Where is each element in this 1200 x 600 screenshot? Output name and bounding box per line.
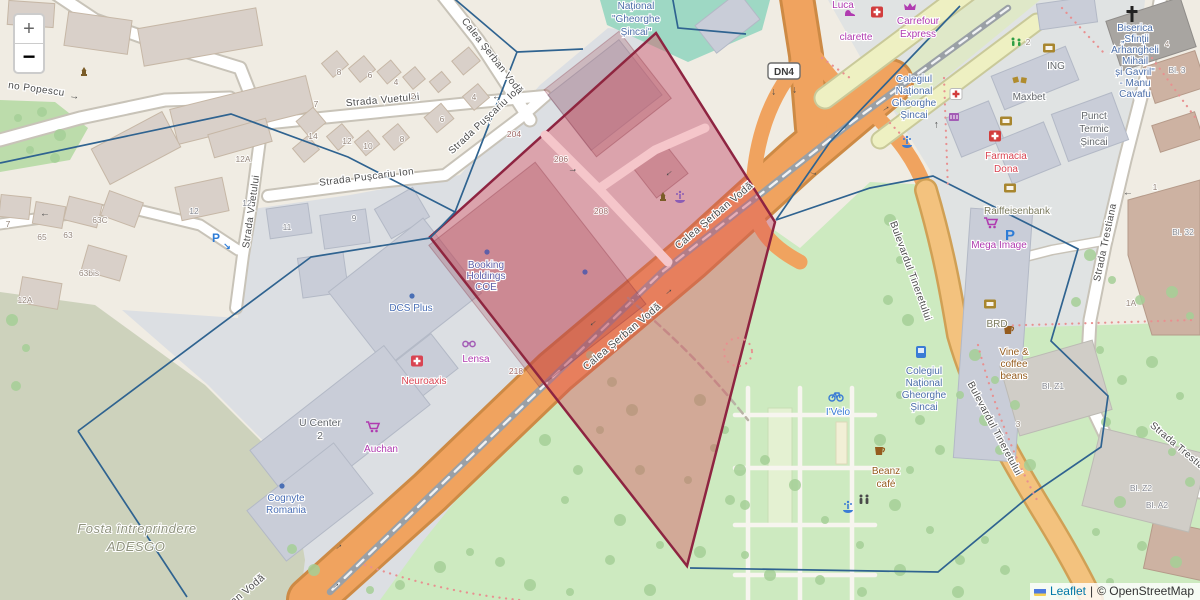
poi-ucenter: U Center — [299, 417, 342, 429]
tree-icon — [395, 580, 405, 590]
tree-icon — [1114, 496, 1126, 508]
zoom-in-button[interactable]: + — [15, 15, 43, 44]
house-number: 6 — [440, 114, 445, 124]
svg-text:Gheorghe: Gheorghe — [892, 98, 937, 109]
tree-icon — [50, 153, 60, 163]
tree-icon — [1185, 477, 1195, 487]
tree-icon — [37, 107, 47, 117]
oneway-arrow-icon: → — [567, 163, 578, 175]
poi-cognyte: Cognyte — [267, 493, 305, 504]
tree-icon — [539, 434, 551, 446]
clinic-icon — [411, 356, 423, 367]
tree-icon — [1146, 356, 1158, 368]
svg-text:și Gavril": și Gavril" — [1115, 67, 1155, 78]
tree-icon — [308, 564, 320, 576]
tree-icon — [734, 464, 746, 476]
pharmacy-icon — [989, 131, 1001, 142]
tree-icon — [466, 548, 474, 556]
house-number: 12A — [17, 295, 32, 305]
house-number: 65 — [37, 232, 47, 242]
tree-icon — [889, 499, 901, 511]
tree-icon — [287, 544, 297, 554]
svg-text:COE: COE — [475, 282, 497, 293]
oneway-arrow-icon: → — [790, 85, 801, 95]
poi-neuroaxis: Neuroaxis — [401, 376, 446, 387]
tree-icon — [11, 381, 21, 391]
zoom-control: + − — [13, 13, 45, 74]
oneway-arrow-icon: → — [930, 120, 941, 130]
dn4-label: DN4 — [774, 67, 794, 78]
oneway-arrow-icon: → — [492, 93, 502, 104]
house-number: Bl. Z2 — [1130, 483, 1152, 493]
house-number: 4 — [1165, 39, 1170, 49]
tree-icon — [1024, 459, 1036, 471]
house-number: 1 — [1153, 182, 1158, 192]
tree-icon — [434, 561, 446, 573]
tree-icon — [981, 536, 989, 544]
house-number: 9 — [352, 213, 357, 223]
tree-icon — [1071, 297, 1081, 307]
svg-text:beans: beans — [1000, 371, 1027, 382]
poi-school-top: Național — [618, 1, 655, 12]
house-number: 6 — [368, 70, 373, 80]
house-number: 63 — [63, 230, 73, 240]
tree-icon — [1092, 528, 1100, 536]
poi-lensa: Lensa — [462, 354, 490, 365]
svg-text:„Sfinții: „Sfinții — [1121, 34, 1149, 45]
house-number: 7 — [314, 99, 319, 109]
svg-text:Șincai: Șincai — [910, 402, 937, 413]
svg-text:Arhangheli: Arhangheli — [1111, 45, 1159, 56]
map-canvas[interactable]: DN4 Strada Vuetului Strada Vuetului Stra… — [0, 0, 1200, 600]
poi-school-park: Colegiul — [906, 366, 942, 377]
atm-icon — [1043, 44, 1055, 53]
oneway-arrow-icon: → — [769, 87, 780, 97]
osm-copyright[interactable]: © OpenStreetMap — [1097, 584, 1194, 598]
atm-icon — [1000, 117, 1012, 126]
poi-brd: BRD — [986, 319, 1007, 330]
tree-icon — [566, 588, 574, 596]
zoom-out-button[interactable]: − — [15, 44, 43, 72]
house-number: 12 — [189, 206, 199, 216]
svg-text:Mihail: Mihail — [1122, 56, 1148, 67]
tree-icon — [644, 584, 656, 596]
tree-icon — [614, 514, 626, 526]
house-number: 63C — [92, 215, 108, 225]
svg-text:Cavafu: Cavafu — [1119, 89, 1151, 100]
tree-icon — [883, 295, 893, 305]
house-number: 2 — [1026, 37, 1031, 47]
tree-icon — [14, 114, 22, 122]
leaflet-link[interactable]: Leaflet — [1050, 584, 1086, 598]
poi-auchan: Auchan — [364, 444, 398, 455]
poi-punct-termic: Punct — [1081, 111, 1107, 122]
svg-text:Șincai: Șincai — [900, 110, 927, 121]
poi-maxbet: Maxbet — [1013, 92, 1046, 103]
svg-text:Șincai: Șincai — [1080, 137, 1107, 148]
map-tiles[interactable]: DN4 Strada Vuetului Strada Vuetului Stra… — [0, 0, 1200, 600]
tree-icon — [894, 564, 906, 576]
svg-text:Termic: Termic — [1079, 124, 1108, 135]
tree-icon — [6, 314, 18, 326]
tree-icon — [740, 500, 750, 510]
house-number: 2 — [411, 91, 416, 101]
svg-text:café: café — [877, 479, 896, 490]
office-dot-icon — [279, 483, 284, 488]
house-number: 1A — [1126, 298, 1137, 308]
oneway-arrow-icon: → — [40, 210, 50, 221]
atm-icon — [984, 300, 996, 309]
parking-icon: P — [212, 231, 220, 245]
tree-icon — [956, 391, 964, 399]
house-number: 3 — [1016, 419, 1021, 429]
tree-icon — [1101, 417, 1111, 427]
tree-icon — [1096, 346, 1104, 354]
tree-icon — [856, 541, 864, 549]
tree-icon — [991, 376, 999, 384]
poi-dcs-plus: DCS Plus — [389, 303, 432, 314]
tree-icon — [915, 415, 925, 425]
tree-icon — [1166, 286, 1178, 298]
svg-text:"Gheorghe: "Gheorghe — [612, 14, 660, 25]
pharmacy-icon — [871, 7, 883, 18]
tree-icon — [725, 495, 735, 505]
house-number: 11 — [283, 222, 292, 232]
tree-icon — [760, 455, 770, 465]
tree-icon — [495, 557, 505, 567]
tree-icon — [1170, 556, 1182, 568]
poi-carrefour: Carrefour — [897, 16, 940, 27]
tree-icon — [789, 479, 801, 491]
atm-icon — [1004, 184, 1016, 193]
bus-stop-icon — [916, 346, 926, 358]
tree-icon — [1000, 565, 1010, 575]
poi-booking: Booking — [468, 260, 504, 271]
house-number: 218 — [509, 366, 523, 376]
tree-icon — [1137, 541, 1147, 551]
house-number: 7 — [6, 219, 11, 229]
tree-icon — [561, 496, 569, 504]
svg-text:Dona: Dona — [994, 164, 1018, 175]
poi-ing: ING — [1047, 61, 1065, 72]
house-number: 8 — [400, 134, 405, 144]
poi-biserica: Biserica — [1117, 23, 1153, 34]
house-number: 63bis — [79, 268, 99, 278]
office-dot-icon — [582, 269, 587, 274]
svg-text:Romania: Romania — [266, 505, 306, 516]
svg-text:Express: Express — [900, 29, 936, 40]
tree-icon — [1108, 276, 1116, 284]
poi-adesgo: Fosta întreprindere — [77, 521, 196, 536]
tree-icon — [1135, 295, 1145, 305]
svg-text:2: 2 — [317, 430, 323, 442]
tree-icon — [857, 587, 867, 597]
tree-icon — [366, 586, 374, 594]
office-dot-icon — [484, 249, 489, 254]
tree-icon — [874, 434, 886, 446]
tree-icon — [902, 314, 914, 326]
tree-icon — [524, 579, 536, 591]
poi-mega-image: Mega Image — [971, 240, 1027, 251]
parking-arrow-icon: ↘ — [223, 241, 231, 251]
tree-icon — [764, 569, 776, 581]
hairdresser-icon — [949, 113, 959, 121]
oneway-arrow-icon: → — [1123, 189, 1133, 200]
dn4-shield: DN4 — [768, 63, 800, 79]
house-number: Bl. 3 — [1168, 65, 1185, 75]
poi-raiffeisenbank: Raiffeisenbank — [984, 206, 1051, 217]
poi-ivelo: I'Velo — [826, 407, 851, 418]
building — [320, 209, 370, 249]
poi-luca: Luca — [832, 0, 854, 11]
tree-icon — [1010, 400, 1020, 410]
building — [266, 203, 312, 239]
svg-text:coffee: coffee — [1000, 359, 1027, 370]
poi-school-junction: Colegiul — [896, 74, 932, 85]
hospital-cross-icon — [950, 89, 962, 100]
tree-icon — [926, 526, 934, 534]
house-number: 204 — [507, 129, 521, 139]
tree-icon — [22, 344, 30, 352]
tree-icon — [741, 551, 749, 559]
tree-icon — [815, 575, 825, 585]
tree-icon — [1084, 249, 1096, 261]
office-dot-icon — [409, 293, 414, 298]
attribution-bar: Leaflet | © OpenStreetMap — [1030, 583, 1200, 600]
house-number: 208 — [594, 206, 608, 216]
house-number: Bl. A2 — [1146, 500, 1168, 510]
svg-text:Național: Național — [906, 378, 943, 389]
tree-icon — [54, 129, 66, 141]
attribution-separator: | — [1090, 584, 1093, 598]
tree-icon — [656, 541, 664, 549]
house-number: Bl. 32 — [1172, 227, 1194, 237]
house-number: 12A — [235, 154, 250, 164]
poi-clarette: clarette — [840, 32, 873, 43]
svg-text:Național: Național — [896, 86, 933, 97]
tree-icon — [573, 465, 583, 475]
svg-text:Șincai": Șincai" — [621, 27, 652, 38]
house-number: 14 — [308, 131, 318, 141]
tree-icon — [605, 555, 615, 565]
house-number: 12 — [242, 198, 252, 208]
house-number: 10 — [363, 141, 373, 151]
oneway-arrow-icon: → — [69, 90, 80, 102]
house-number: 206 — [554, 154, 568, 164]
tree-icon — [821, 516, 829, 524]
svg-text:Gheorghe: Gheorghe — [902, 390, 947, 401]
svg-text:- Manu: - Manu — [1119, 78, 1150, 89]
house-number: 12 — [342, 136, 352, 146]
tree-icon — [952, 586, 964, 598]
building — [0, 194, 31, 219]
tree-icon — [935, 445, 945, 455]
poi-beanz: Beanz — [872, 466, 900, 477]
house-number: 4 — [394, 77, 399, 87]
svg-text:Holdings: Holdings — [467, 271, 506, 282]
tree-icon — [694, 546, 706, 558]
tree-icon — [1136, 426, 1148, 438]
tree-icon — [906, 466, 914, 474]
svg-text:ADESGO: ADESGO — [106, 539, 166, 554]
house-number: 4 — [472, 92, 477, 102]
house-number: 8 — [337, 67, 342, 77]
tree-icon — [1117, 375, 1127, 385]
poi-vine-coffee: Vine & — [999, 347, 1029, 358]
parking-icon: P — [1005, 227, 1015, 244]
house-number: Bl. Z1 — [1042, 381, 1064, 391]
tree-icon — [1186, 312, 1194, 320]
tree-icon — [1176, 392, 1184, 400]
poi-farmacia: Farmacia — [985, 151, 1027, 162]
ukraine-flag-icon — [1034, 587, 1046, 596]
tree-icon — [26, 146, 34, 154]
